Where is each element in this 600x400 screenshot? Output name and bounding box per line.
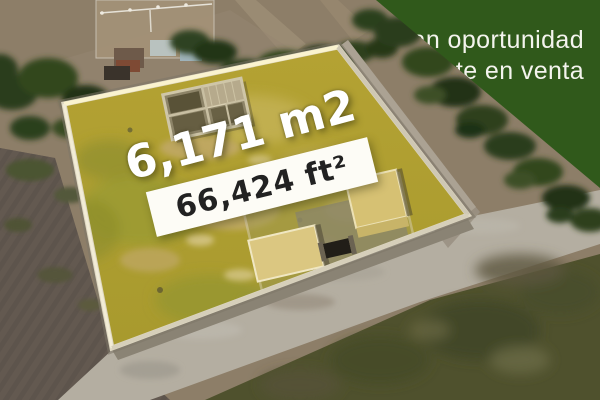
screenshot-root: Gran oportunidad Lote en venta 6,171 m2 … bbox=[0, 0, 600, 400]
